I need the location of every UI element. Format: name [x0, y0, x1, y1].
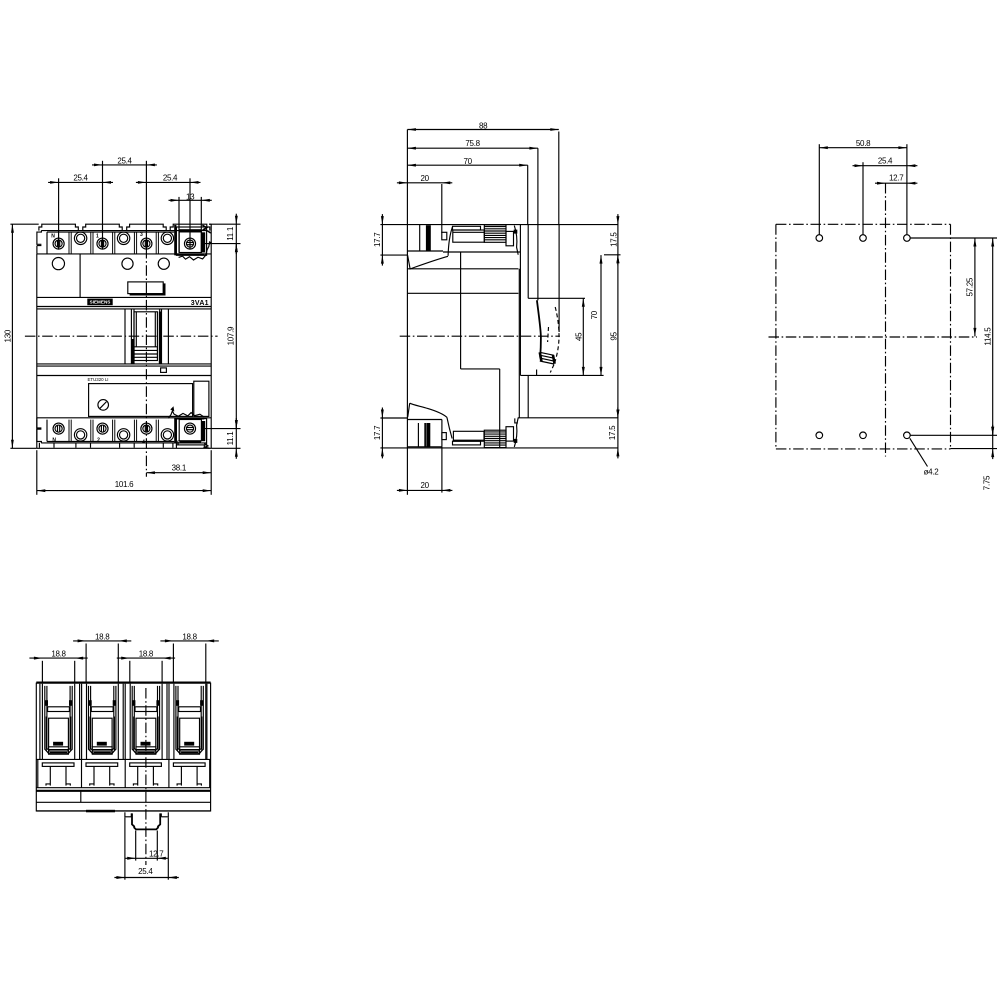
svg-text:20: 20 [420, 481, 429, 490]
svg-text:130: 130 [3, 329, 12, 342]
svg-text:25.4: 25.4 [138, 867, 153, 876]
svg-text:18.8: 18.8 [182, 632, 197, 641]
svg-text:88: 88 [479, 121, 488, 130]
svg-text:11.1: 11.1 [226, 431, 235, 446]
svg-text:18.8: 18.8 [51, 650, 66, 659]
svg-text:17.5: 17.5 [609, 232, 618, 247]
svg-text:3VA1: 3VA1 [191, 300, 209, 307]
svg-text:17.7: 17.7 [373, 425, 382, 440]
svg-text:12.7: 12.7 [149, 850, 164, 859]
svg-text:12.7: 12.7 [889, 173, 904, 182]
svg-text:38.1: 38.1 [172, 463, 187, 472]
svg-text:18.8: 18.8 [139, 650, 154, 659]
svg-text:17.7: 17.7 [373, 232, 382, 247]
svg-text:17.5: 17.5 [608, 425, 617, 440]
svg-text:11.1: 11.1 [226, 226, 235, 241]
svg-text:25.4: 25.4 [73, 174, 88, 183]
svg-text:ø4.2: ø4.2 [924, 468, 940, 477]
svg-text:20: 20 [420, 174, 429, 183]
svg-text:45: 45 [575, 332, 584, 341]
svg-text:57.25: 57.25 [965, 277, 974, 296]
svg-text:25.4: 25.4 [163, 174, 178, 183]
svg-text:7.75: 7.75 [983, 475, 992, 490]
svg-text:70: 70 [463, 157, 472, 166]
svg-text:SIEMENS: SIEMENS [90, 300, 111, 305]
svg-text:25.4: 25.4 [878, 157, 893, 166]
svg-text:75.8: 75.8 [465, 139, 480, 148]
svg-text:13: 13 [186, 192, 195, 201]
svg-text:ETU320 LI: ETU320 LI [88, 377, 109, 382]
svg-text:101.6: 101.6 [115, 480, 134, 489]
svg-text:107.9: 107.9 [227, 326, 236, 345]
svg-text:18.8: 18.8 [95, 632, 110, 641]
svg-text:70: 70 [590, 310, 599, 319]
svg-text:95: 95 [609, 331, 618, 340]
svg-text:50.8: 50.8 [856, 139, 871, 148]
svg-text:25.4: 25.4 [117, 157, 132, 166]
svg-text:114.5: 114.5 [983, 327, 992, 346]
